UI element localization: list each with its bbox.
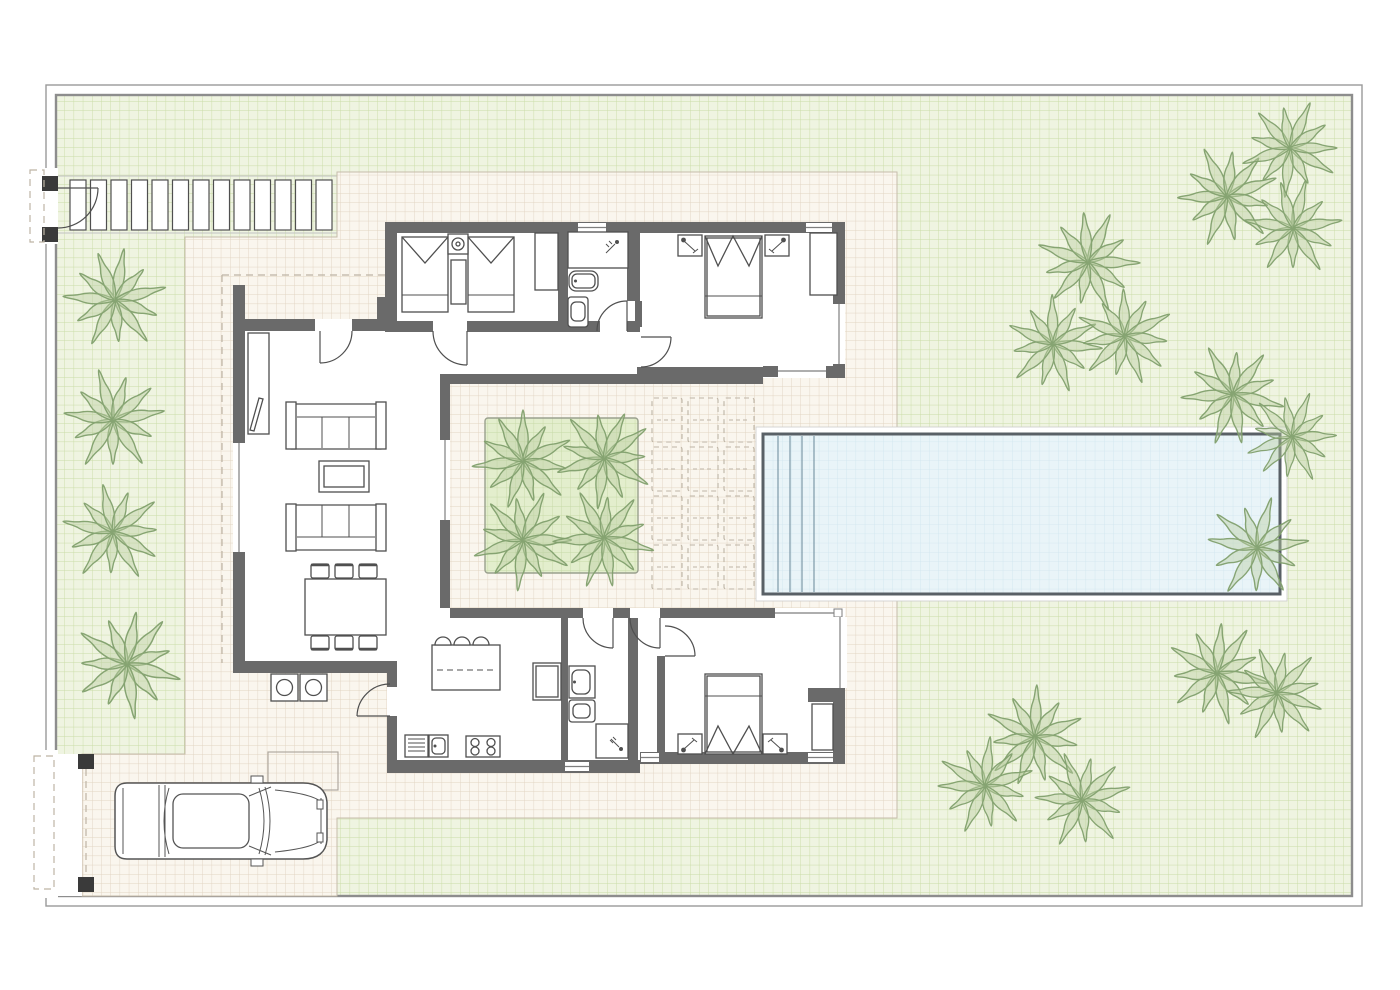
closet [810, 233, 837, 295]
stepping-stone [255, 180, 271, 230]
nightstand [678, 235, 702, 256]
double-bed [705, 236, 762, 318]
headlight [317, 800, 323, 809]
side-mirror [251, 776, 263, 783]
dining-set [305, 564, 386, 650]
stepping-stone [316, 180, 332, 230]
fridge [533, 663, 561, 700]
oven [405, 735, 428, 757]
tv-sideboard [248, 333, 269, 434]
car [115, 776, 327, 866]
closet [812, 704, 833, 750]
shower [568, 232, 628, 268]
bbq-burner-unit [271, 674, 298, 701]
hob [466, 736, 500, 757]
stepping-stone [193, 180, 209, 230]
kitchen-sink [429, 735, 448, 757]
entrance-walkway [58, 176, 337, 233]
nightstand [448, 234, 468, 254]
headlight [317, 833, 323, 842]
stepping-stone [214, 180, 230, 230]
wardrobe [535, 233, 558, 290]
pool [756, 427, 1287, 601]
nightstand [765, 235, 789, 256]
stepping-stone [132, 180, 148, 230]
single-bed [468, 237, 514, 312]
stepping-stone [152, 180, 168, 230]
bbq-burner-unit [300, 674, 327, 701]
sofa [286, 504, 386, 551]
parking-threshold [56, 754, 82, 896]
sofa [286, 402, 386, 449]
side-mirror [251, 859, 263, 866]
shower [596, 724, 628, 758]
kitchen-island [432, 645, 500, 690]
gate-post [78, 754, 94, 769]
floor-plan-canvas [0, 0, 1400, 990]
washbasin [569, 666, 595, 698]
single-bed [402, 237, 448, 312]
double-bed [705, 674, 762, 754]
gate-post [78, 877, 94, 892]
stepping-stone [234, 180, 250, 230]
stepping-stone [111, 180, 127, 230]
dining-table [305, 579, 386, 635]
site-plan [0, 0, 1400, 990]
stepping-stone [275, 180, 291, 230]
stepping-stone [173, 180, 189, 230]
bedside-runner [451, 260, 466, 304]
stepping-stone [296, 180, 312, 230]
